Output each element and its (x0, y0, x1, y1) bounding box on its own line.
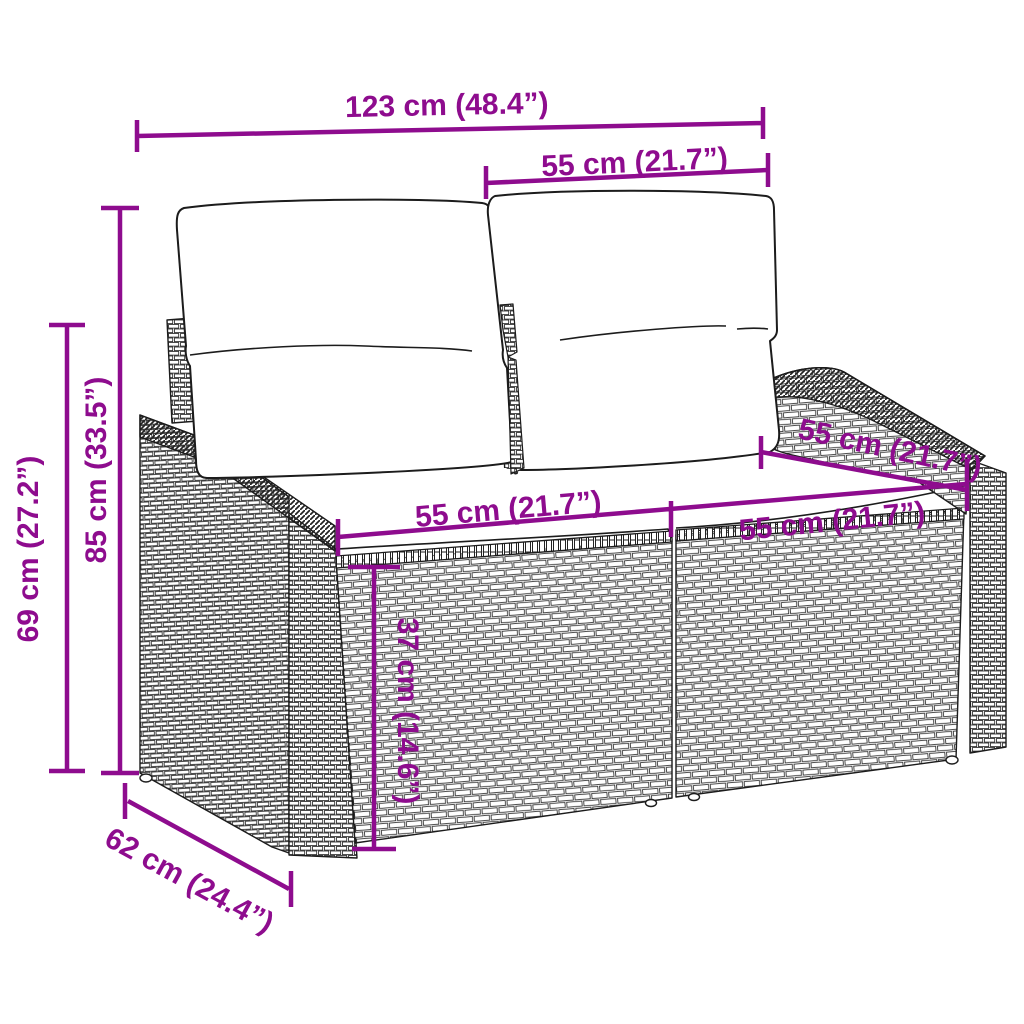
svg-text:85 cm (33.5”): 85 cm (33.5”) (80, 377, 113, 564)
svg-text:123 cm (48.4”): 123 cm (48.4”) (345, 87, 549, 124)
svg-text:69 cm (27.2”): 69 cm (27.2”) (12, 456, 45, 643)
svg-text:37 cm (14.6”): 37 cm (14.6”) (391, 618, 424, 805)
